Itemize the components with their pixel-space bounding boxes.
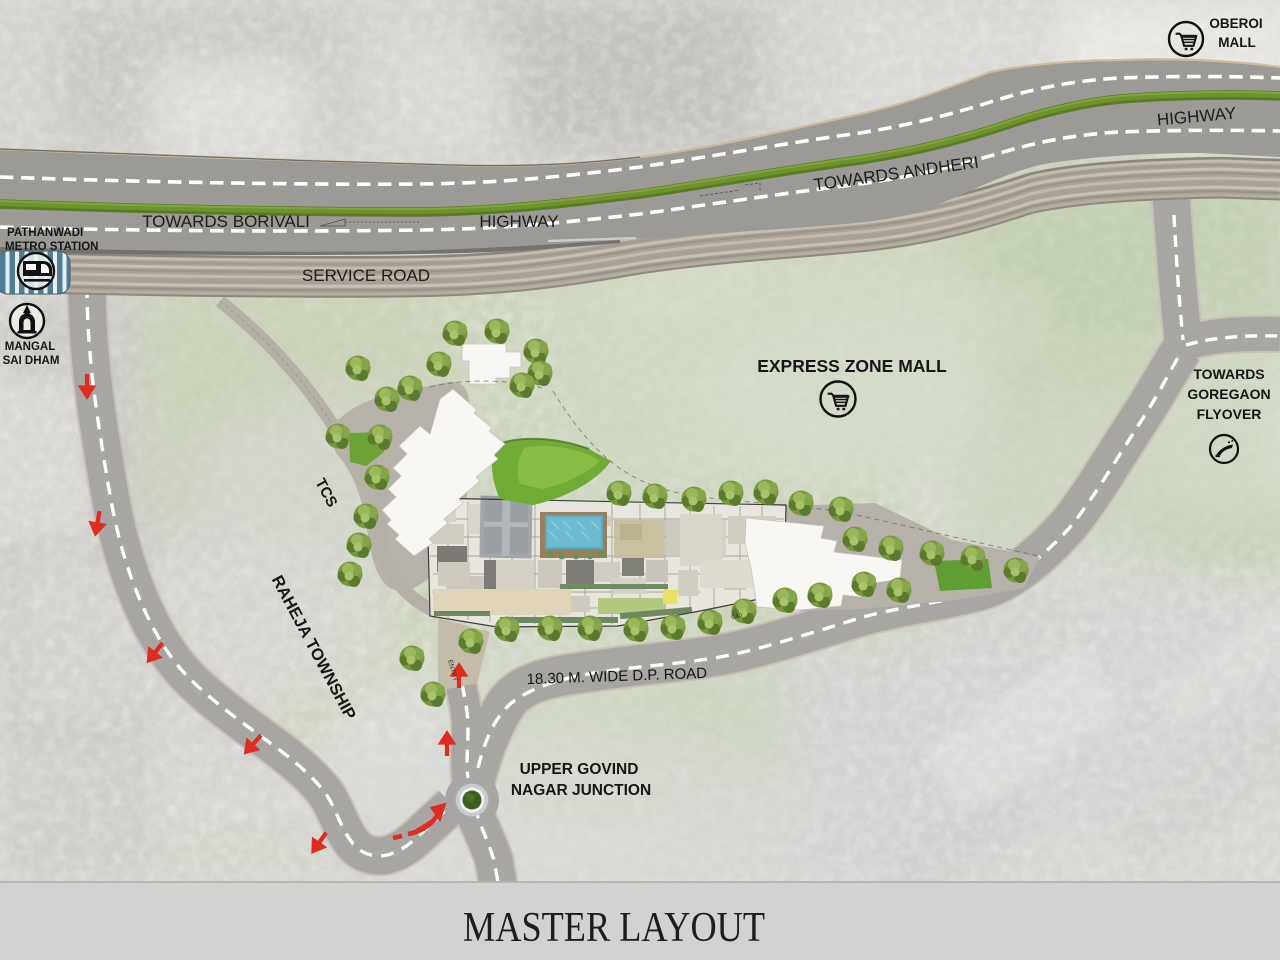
svg-text:MALL: MALL (1218, 35, 1256, 50)
svg-text:HIGHWAY: HIGHWAY (479, 212, 558, 231)
svg-text:SAI DHAM: SAI DHAM (3, 355, 60, 367)
svg-text:TOWARDS BORIVALI: TOWARDS BORIVALI (142, 212, 310, 231)
svg-text:MANGAL: MANGAL (5, 341, 55, 353)
svg-text:EXPRESS ZONE MALL: EXPRESS ZONE MALL (757, 356, 947, 376)
svg-text:NAGAR JUNCTION: NAGAR JUNCTION (511, 782, 651, 799)
svg-text:FLYOVER: FLYOVER (1197, 406, 1262, 422)
svg-text:OBEROI: OBEROI (1209, 16, 1262, 31)
svg-text:TOWARDS: TOWARDS (1193, 366, 1264, 382)
svg-text:METRO STATION: METRO STATION (5, 241, 98, 253)
svg-text:UPPER GOVIND: UPPER GOVIND (520, 761, 639, 778)
svg-text:GOREGAON: GOREGAON (1187, 386, 1270, 402)
svg-text:SERVICE ROAD: SERVICE ROAD (302, 266, 430, 285)
svg-text:PATHANWADI: PATHANWADI (7, 227, 83, 239)
svg-text:MASTER LAYOUT: MASTER LAYOUT (463, 905, 765, 951)
